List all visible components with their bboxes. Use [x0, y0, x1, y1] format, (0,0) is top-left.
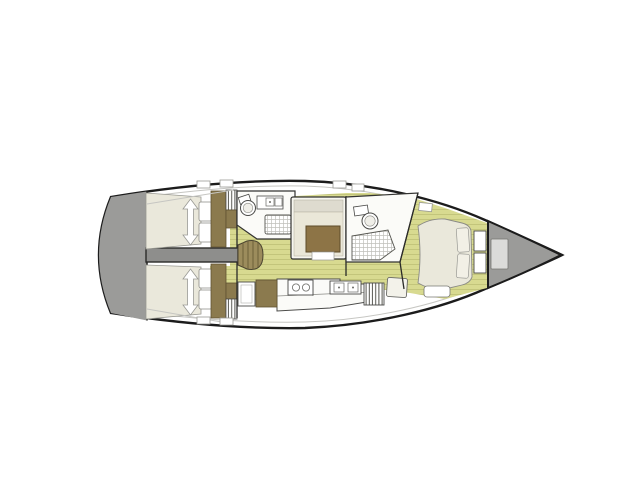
- pillow: [199, 202, 212, 221]
- shower-grate: [265, 215, 291, 234]
- drain-dot: [352, 287, 354, 289]
- toilet-bowl: [243, 203, 253, 213]
- table-leaf: [312, 252, 334, 260]
- aft-cabin-starboard: [146, 262, 237, 319]
- boat-plan-canvas: [0, 0, 640, 480]
- wardrobe: [211, 264, 226, 318]
- louver-locker: [226, 190, 237, 210]
- pillow: [456, 228, 470, 253]
- toilet-bowl: [365, 216, 375, 226]
- pillow: [199, 269, 212, 288]
- drain-dot: [338, 287, 340, 289]
- deck-hatch: [333, 181, 346, 188]
- nav-seat-louver: [364, 283, 384, 305]
- deck-hatch: [419, 202, 433, 211]
- sink-basin: [275, 198, 282, 206]
- pillow: [199, 223, 212, 242]
- fridge: [238, 282, 255, 306]
- bow-shelf: [474, 231, 486, 251]
- deck-hatch: [197, 317, 210, 324]
- cabinet: [226, 210, 237, 228]
- deck-plan-svg: [0, 0, 640, 480]
- cabinet: [226, 283, 237, 299]
- deck-hatch: [352, 184, 364, 191]
- bow-shelf: [474, 253, 486, 273]
- deck-hatch: [197, 181, 210, 188]
- deck-hatch: [220, 318, 233, 325]
- saloon-table: [306, 226, 340, 252]
- deck-hatch: [220, 180, 233, 187]
- aft-head: [237, 191, 295, 239]
- engine-box: [146, 248, 238, 262]
- galley-cabinet: [256, 280, 277, 307]
- drain-dot: [269, 201, 271, 203]
- anchor-hatch: [491, 239, 508, 269]
- anchor-locker: [488, 221, 561, 288]
- wardrobe: [211, 191, 226, 247]
- companionway-steps: [238, 241, 263, 270]
- louver-locker: [226, 299, 237, 319]
- aft-cabin-port: [146, 190, 237, 249]
- pillow: [199, 290, 212, 309]
- pillow: [456, 254, 470, 279]
- settee-backrest: [294, 200, 343, 212]
- cabin-bench: [424, 286, 450, 297]
